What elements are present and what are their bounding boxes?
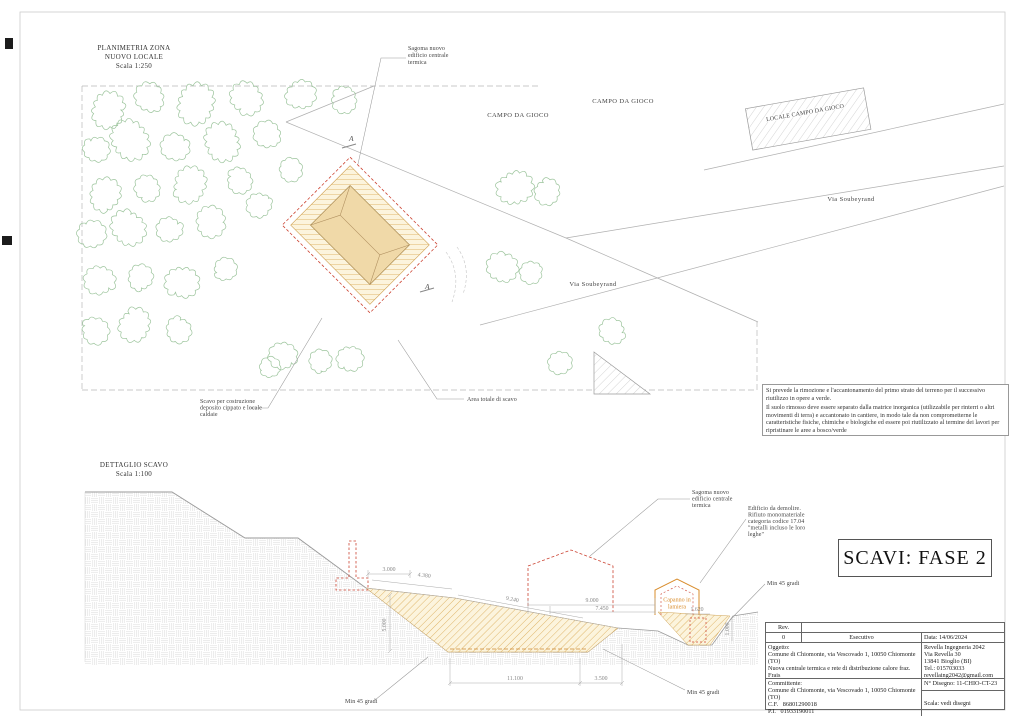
area-scavo-label: Area totale di scavo	[467, 397, 517, 403]
min45-label-a: Min 45 gradi	[767, 581, 800, 587]
min45-label-b: Min 45 gradi	[687, 690, 720, 696]
dim-3500: 3.500	[594, 676, 607, 682]
demolire-label: Edificio da demolire. Rifiuto monomateri…	[748, 505, 805, 538]
note-paragraph-2: Il suolo rimosso deve essere separato da…	[766, 404, 1005, 434]
tree-icon	[166, 316, 192, 344]
excavation-section: Capanno in lamiera 3.000 4.380 9.240 5.0…	[85, 490, 805, 705]
campo-label-1: CAMPO DA GIOCO	[487, 112, 549, 119]
oggetto-cell: Oggetto: Comune di Chiomonte, via Vescov…	[766, 643, 922, 678]
tree-icon	[204, 121, 241, 163]
tree-icon	[160, 133, 190, 161]
tree-icon	[76, 220, 107, 248]
registration-mark	[5, 38, 13, 49]
drawing-sheet: LOCALE CAMPO DA GIOCO A A CAMPO DA GIOCO…	[0, 0, 1024, 723]
svg-text:Sagoma nuovo: Sagoma nuovo	[408, 46, 445, 52]
sagoma-plan-label: Sagoma nuovo edificio centrale termica	[408, 46, 449, 66]
note-paragraph-1: Si prevede la rimozione e l'accantonamen…	[766, 387, 1005, 402]
tree-icon	[336, 346, 364, 371]
tree-icon	[91, 91, 125, 130]
tree-icon	[228, 167, 253, 194]
rev-number: 0	[766, 633, 802, 642]
dim-9240: 9.240	[505, 596, 519, 604]
tree-icon	[134, 175, 161, 202]
svg-text:Sagoma nuovo: Sagoma nuovo	[692, 490, 729, 496]
tree-icon	[331, 86, 357, 114]
tree-icon	[110, 118, 151, 161]
dim-4380: 4.380	[417, 572, 431, 580]
tree-icon	[82, 137, 110, 162]
locale-campo-building: LOCALE CAMPO DA GIOCO	[745, 88, 870, 150]
tree-icon	[156, 217, 183, 242]
tree-icon	[259, 356, 281, 377]
dim-3000: 3.000	[382, 567, 395, 573]
scale-cell: Scala: vedi disegni	[922, 691, 1004, 716]
min45-label-c: Min 45 gradi	[345, 699, 378, 705]
campo-label-2: CAMPO DA GIOCO	[592, 98, 654, 105]
svg-text:Rifiuto monomateriale: Rifiuto monomateriale	[748, 512, 805, 519]
phase-stamp: SCAVI: FASE 2	[838, 539, 992, 577]
tree-icon	[82, 317, 110, 345]
via-label-2: Via Soubeyrand	[569, 281, 617, 288]
svg-text:edificio centrale: edificio centrale	[408, 52, 449, 59]
committente-cell: Committente: Comune di Chiomonte, via Ve…	[766, 679, 922, 716]
tree-icon	[246, 193, 272, 218]
svg-text:edificio centrale: edificio centrale	[692, 496, 733, 503]
note-box: Si prevede la rimozione e l'accantonamen…	[762, 384, 1009, 436]
svg-text:caldaie: caldaie	[200, 412, 218, 418]
svg-text:Scavo per costruzione: Scavo per costruzione	[200, 399, 255, 405]
contour-dashed	[446, 247, 466, 302]
drawing-number-cell: N° Disegno: 11-CHIO-CT-23	[922, 679, 1004, 691]
date-cell: Data: 14/06/2024	[922, 633, 1004, 642]
section-marker-a2: A	[424, 282, 430, 291]
dim-1000: 1.000	[725, 622, 731, 635]
hatched-wedge-building	[594, 352, 650, 394]
plan-title: PLANIMETRIA ZONA NUOVO LOCALE Scala 1:25…	[86, 44, 182, 71]
detail-title: DETTAGLIO SCAVO Scala 1:100	[86, 461, 182, 479]
tree-icon	[196, 205, 226, 239]
tree-icon	[214, 257, 237, 280]
dim-7450: 7.450	[595, 606, 608, 612]
via-label-1: Via Soubeyrand	[827, 196, 875, 203]
dim-9000: 9.000	[585, 598, 598, 604]
section-marker-a1: A	[348, 134, 354, 143]
tree-icon	[110, 209, 147, 247]
new-building-profile-dashed	[528, 550, 613, 612]
sagoma-section-label: Sagoma nuovo edificio centrale termica	[692, 490, 733, 509]
tree-icon	[83, 266, 116, 295]
firm-cell: Revella Ingegneria 2042 Via Revella 30 1…	[922, 643, 1004, 678]
svg-text:termica: termica	[692, 503, 711, 509]
tree-icon	[519, 261, 542, 284]
svg-text:Edificio da demolire.: Edificio da demolire.	[748, 505, 801, 512]
tree-icon	[284, 79, 316, 108]
tree-icon	[309, 349, 332, 374]
tree-icon	[495, 170, 534, 204]
drawing-canvas: LOCALE CAMPO DA GIOCO A A CAMPO DA GIOCO…	[0, 0, 1024, 723]
tree-icon	[118, 307, 151, 343]
svg-text:"metalli incluso le loro: "metalli incluso le loro	[748, 526, 805, 532]
capanno-label-1: Capanno in	[663, 598, 691, 604]
tree-icon	[547, 351, 572, 375]
rev-name: Esecutivo	[802, 633, 922, 642]
phase-stamp-text: SCAVI: FASE 2	[843, 547, 986, 570]
site-plan: LOCALE CAMPO DA GIOCO A A CAMPO DA GIOCO…	[76, 46, 1004, 418]
svg-text:termica: termica	[408, 60, 427, 66]
dim-1620: 1.620	[690, 607, 703, 613]
rev-label: Rev.	[766, 623, 802, 632]
tree-icon	[253, 120, 281, 148]
tree-icon	[177, 82, 216, 127]
dim-5000: 5.000	[382, 618, 388, 631]
tree-icon	[128, 264, 154, 292]
tree-icon	[599, 318, 626, 345]
tree-icon	[90, 177, 122, 214]
tree-icon	[279, 157, 302, 182]
scavo-plan-label: Scavo per costruzione deposito cippato e…	[200, 399, 262, 418]
svg-text:deposito cippato e locale: deposito cippato e locale	[200, 406, 262, 412]
tree-icon	[486, 251, 519, 282]
new-building-plan	[282, 157, 438, 313]
tree-icon	[534, 178, 560, 206]
title-block: Rev. 0 Esecutivo Data: 14/06/2024 Oggett…	[765, 622, 1005, 710]
tree-icon	[164, 267, 200, 298]
dim-11100: 11.100	[507, 676, 523, 682]
capanno-label-2: lamiera	[668, 605, 686, 611]
svg-text:categoria codice 17.04: categoria codice 17.04	[748, 519, 804, 525]
svg-text:leghe": leghe"	[748, 532, 764, 538]
tree-icon	[173, 166, 207, 204]
registration-mark	[2, 236, 12, 245]
